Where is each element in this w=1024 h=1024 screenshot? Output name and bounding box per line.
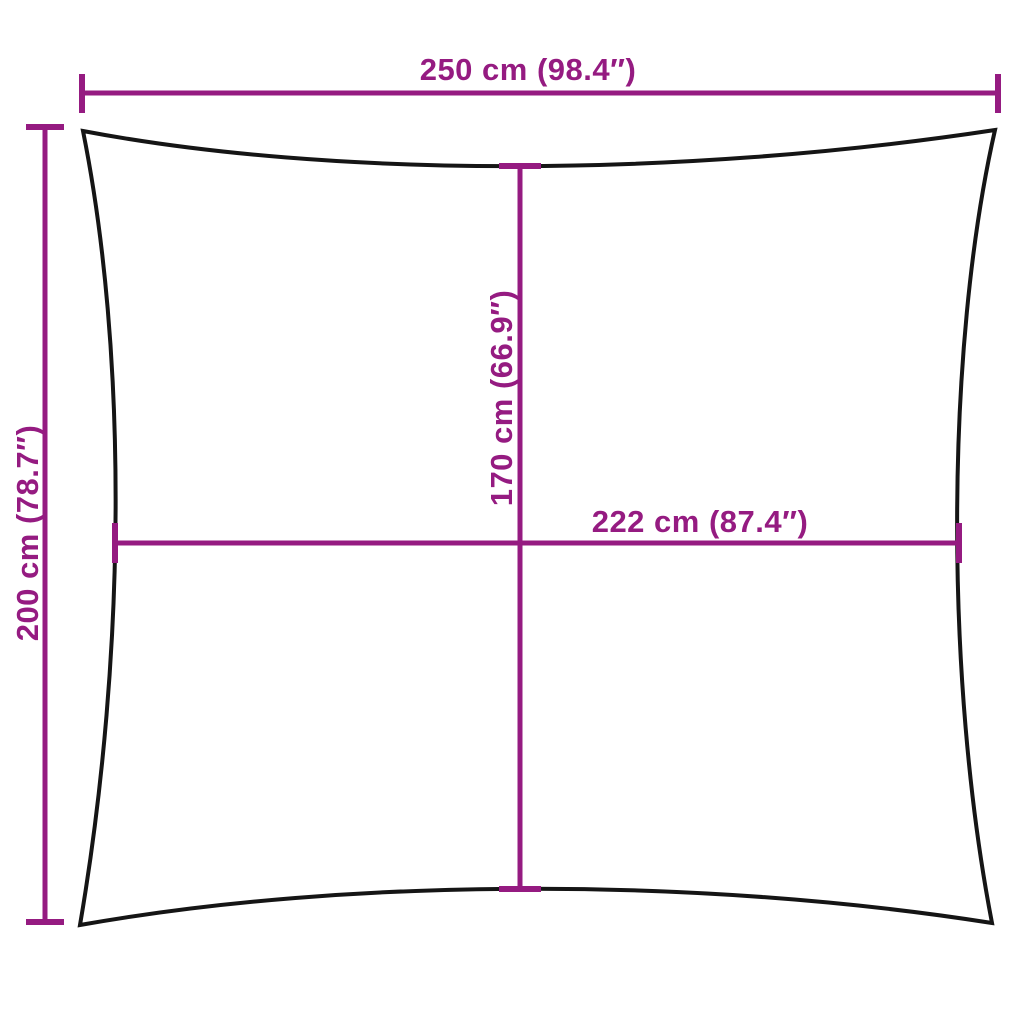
product-dimension-diagram: 250 cm (98.4″) 200 cm (78.7″) 170 cm (66… [0, 0, 1024, 1024]
dimension-center-width [115, 523, 959, 563]
diagram-canvas [0, 0, 1024, 1024]
top-width-label: 250 cm (98.4″) [420, 52, 637, 88]
center-width-label: 222 cm (87.4″) [592, 504, 809, 540]
center-height-label: 170 cm (66.9″) [484, 290, 520, 507]
sail-outline [80, 130, 995, 925]
dimension-center-height [499, 166, 541, 889]
left-height-label: 200 cm (78.7″) [10, 425, 46, 642]
